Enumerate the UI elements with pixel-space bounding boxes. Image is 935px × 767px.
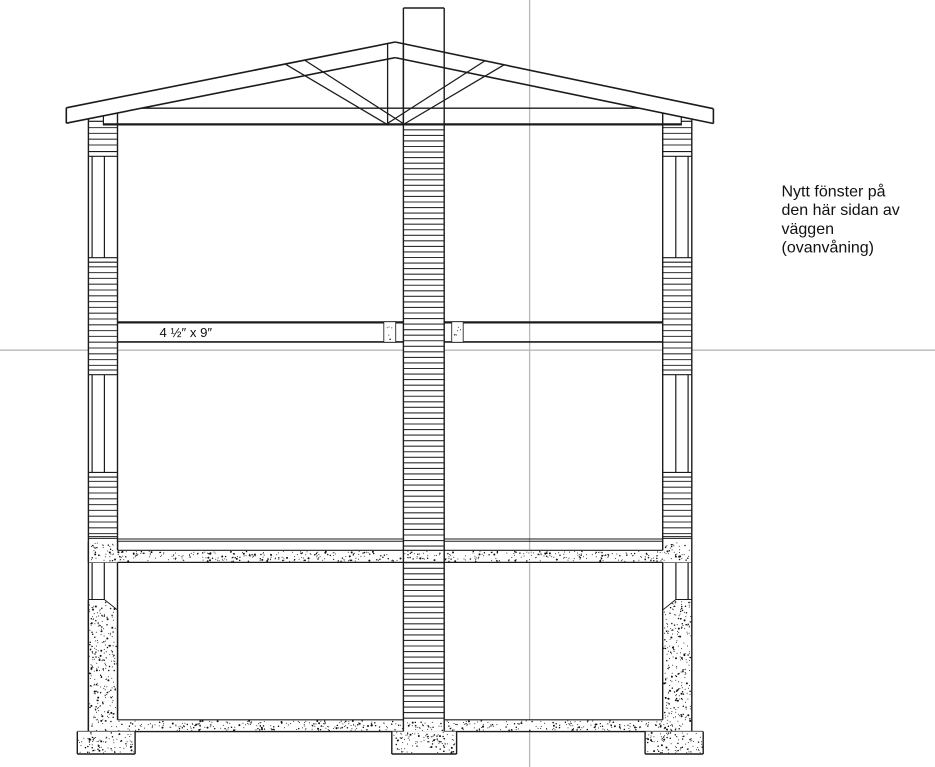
svg-text:4 ½″ x 9″: 4 ½″ x 9″ <box>160 325 213 340</box>
svg-text:Nytt fönster påden här sidan a: Nytt fönster påden här sidan avväggen(ov… <box>782 183 900 257</box>
